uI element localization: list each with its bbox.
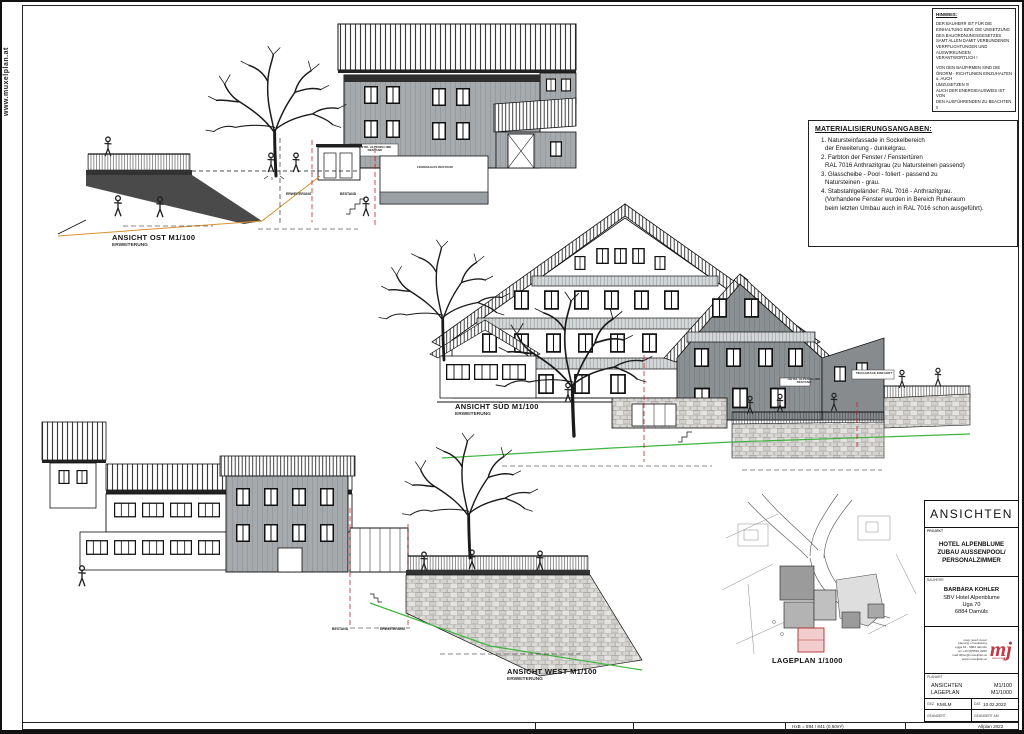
- titleblock-changed-row: GEÄNDERT GEÄNDERT AM: [925, 710, 1018, 721]
- mj-logo: mj muxelplan: [990, 641, 1012, 660]
- drawn-value: KM/LM: [937, 702, 952, 707]
- materials-item: 1. Natursteinfassade in Sockelbereich de…: [815, 137, 1011, 153]
- lageplan-title: LAGEPLAN 1/1000: [772, 656, 843, 665]
- titleblock-client-section: BAUHERR BARBARA KOHLER SBV Hotel Alpenbl…: [925, 577, 1018, 627]
- west-subtitle: ERWEITERUNG: [507, 677, 597, 682]
- ost-title: ANSICHT OST M1/100: [112, 233, 195, 242]
- hinweis-paragraph-2: VON DEN BAUFIRMEN SIND DIE ÖNORM - RICHT…: [936, 65, 1012, 110]
- west-title: ANSICHT WEST M1/100: [507, 667, 597, 676]
- changed-label-2: GEÄNDERT AM: [974, 714, 999, 718]
- hinweis-note: HINWEIS: DER BAUHERR IST FÜR DIE EINHALT…: [932, 8, 1016, 112]
- sued-hotel-sign: HOTEL ALPENBLUME BESTAND: [782, 378, 826, 385]
- materials-title: MATERIALISIERUNGSANGABEN:: [815, 126, 1011, 133]
- hinweis-paragraph-1: DER BAUHERR IST FÜR DIE EINHALTUNG BZW. …: [936, 21, 1012, 61]
- plan-type: ANSICHTEN LAGEPLAN: [931, 683, 962, 698]
- materials-note: MATERIALISIERUNGSANGABEN: 1. Natursteinf…: [808, 120, 1018, 247]
- website-vertical-text: www.muxelplan.at: [3, 100, 10, 116]
- lageplan-buildings: [773, 566, 885, 652]
- paper-size-note: HxB = 594 / 841 (0,50m²): [792, 724, 844, 729]
- lageplan-label: LAGEPLAN 1/1000: [772, 656, 843, 665]
- ost-erweiterung-label: ERWEITERUNG: [286, 193, 311, 197]
- client-name: BARBARA KOHLER: [925, 587, 1018, 595]
- drawn-cell: GEZ. KM/LM: [925, 699, 972, 709]
- client-address: SBV Hotel Alpenblume Uga 70 6884 Damüls: [925, 595, 1018, 617]
- changed-cell-2: GEÄNDERT AM: [972, 710, 1018, 721]
- west-tower: [42, 422, 106, 508]
- titleblock-logo-section: mag. josef muxel planung + bauleitung eg…: [925, 627, 1018, 675]
- strip-tick: [905, 722, 906, 730]
- project-label: PROJEKT: [927, 529, 943, 534]
- date-value: 10.02.2022: [983, 702, 1006, 707]
- hinweis-title: HINWEIS:: [936, 12, 1012, 18]
- title-block: ANSICHTEN PROJEKT HOTEL ALPENBLUME ZUBAU…: [924, 500, 1019, 722]
- changed-label: GEÄNDERT: [927, 714, 946, 718]
- ost-bestand-label: BESTAND: [340, 193, 356, 197]
- titleblock-drawn-row: GEZ. KM/LM DAT. 10.02.2022: [925, 699, 1018, 710]
- drawn-label: GEZ.: [927, 702, 935, 706]
- titleblock-title: ANSICHTEN: [925, 501, 1018, 528]
- sheet-bottom-bar: [2, 730, 1022, 734]
- date-cell: DAT. 10.02.2022: [972, 699, 1018, 709]
- changed-cell: GEÄNDERT: [925, 710, 972, 721]
- materials-item: 3. Glasscheibe - Pool - foliert - passen…: [815, 171, 1011, 187]
- titleblock-plan-section: PLANART ANSICHTEN LAGEPLAN M1/100 M1/100…: [925, 674, 1018, 699]
- ost-label: ANSICHT OST M1/100 ERWEITERUNG: [112, 233, 195, 248]
- materials-item: 2. Farbton der Fenster / Fenstertüren RA…: [815, 154, 1011, 170]
- ost-building: [316, 24, 576, 204]
- west-mid-gray-block: [220, 456, 355, 572]
- ansicht-west-drawing: [20, 408, 645, 708]
- west-bestand-label: BESTAND: [332, 628, 348, 632]
- west-erweiterung-label: ERWEITERUNG: [380, 628, 405, 632]
- strip-tick: [633, 722, 634, 730]
- west-tree: [402, 433, 537, 558]
- drawing-sheet: www.muxelplan.at HxB = 594 / 841 (0,50m²…: [0, 0, 1024, 734]
- sued-tiefgarage-sign: TIEFGARAGE EINFAHRT: [854, 372, 894, 375]
- strip-tick: [785, 722, 786, 730]
- ost-hotel-sign: HOTEL ALPENBLUME BESTAND: [352, 146, 398, 153]
- materials-item: 4. Stabstahlgeländer: RAL 7016 - Anthraz…: [815, 188, 1011, 212]
- mj-logo-subtext: muxelplan: [990, 657, 1012, 659]
- west-label: ANSICHT WEST M1/100 ERWEITERUNG: [507, 667, 597, 682]
- software-note: Allplan 2022: [978, 724, 1003, 729]
- client-label: BAUHERR: [927, 578, 944, 582]
- strip-tick: [535, 722, 536, 730]
- plan-scale: M1/100 M1/1000: [991, 683, 1012, 698]
- west-pool-extension: [350, 508, 408, 628]
- bottom-strip-line: [22, 722, 1019, 723]
- titleblock-project-section: PROJEKT HOTEL ALPENBLUME ZUBAU AUSSENPOO…: [925, 528, 1018, 578]
- ost-subtitle: ERWEITERUNG: [112, 243, 195, 248]
- office-contact-lines: mag. josef muxel planung + bauleitung eg…: [952, 639, 987, 662]
- ost-ferienhaus-sign: FERIENHAUS BESTAND: [382, 166, 488, 169]
- project-name: HOTEL ALPENBLUME ZUBAU AUSSENPOOL/ PERSO…: [925, 541, 1018, 566]
- plan-label: PLANART: [927, 675, 943, 679]
- date-label: DAT.: [974, 702, 981, 706]
- lageplan-drawing: [718, 494, 923, 669]
